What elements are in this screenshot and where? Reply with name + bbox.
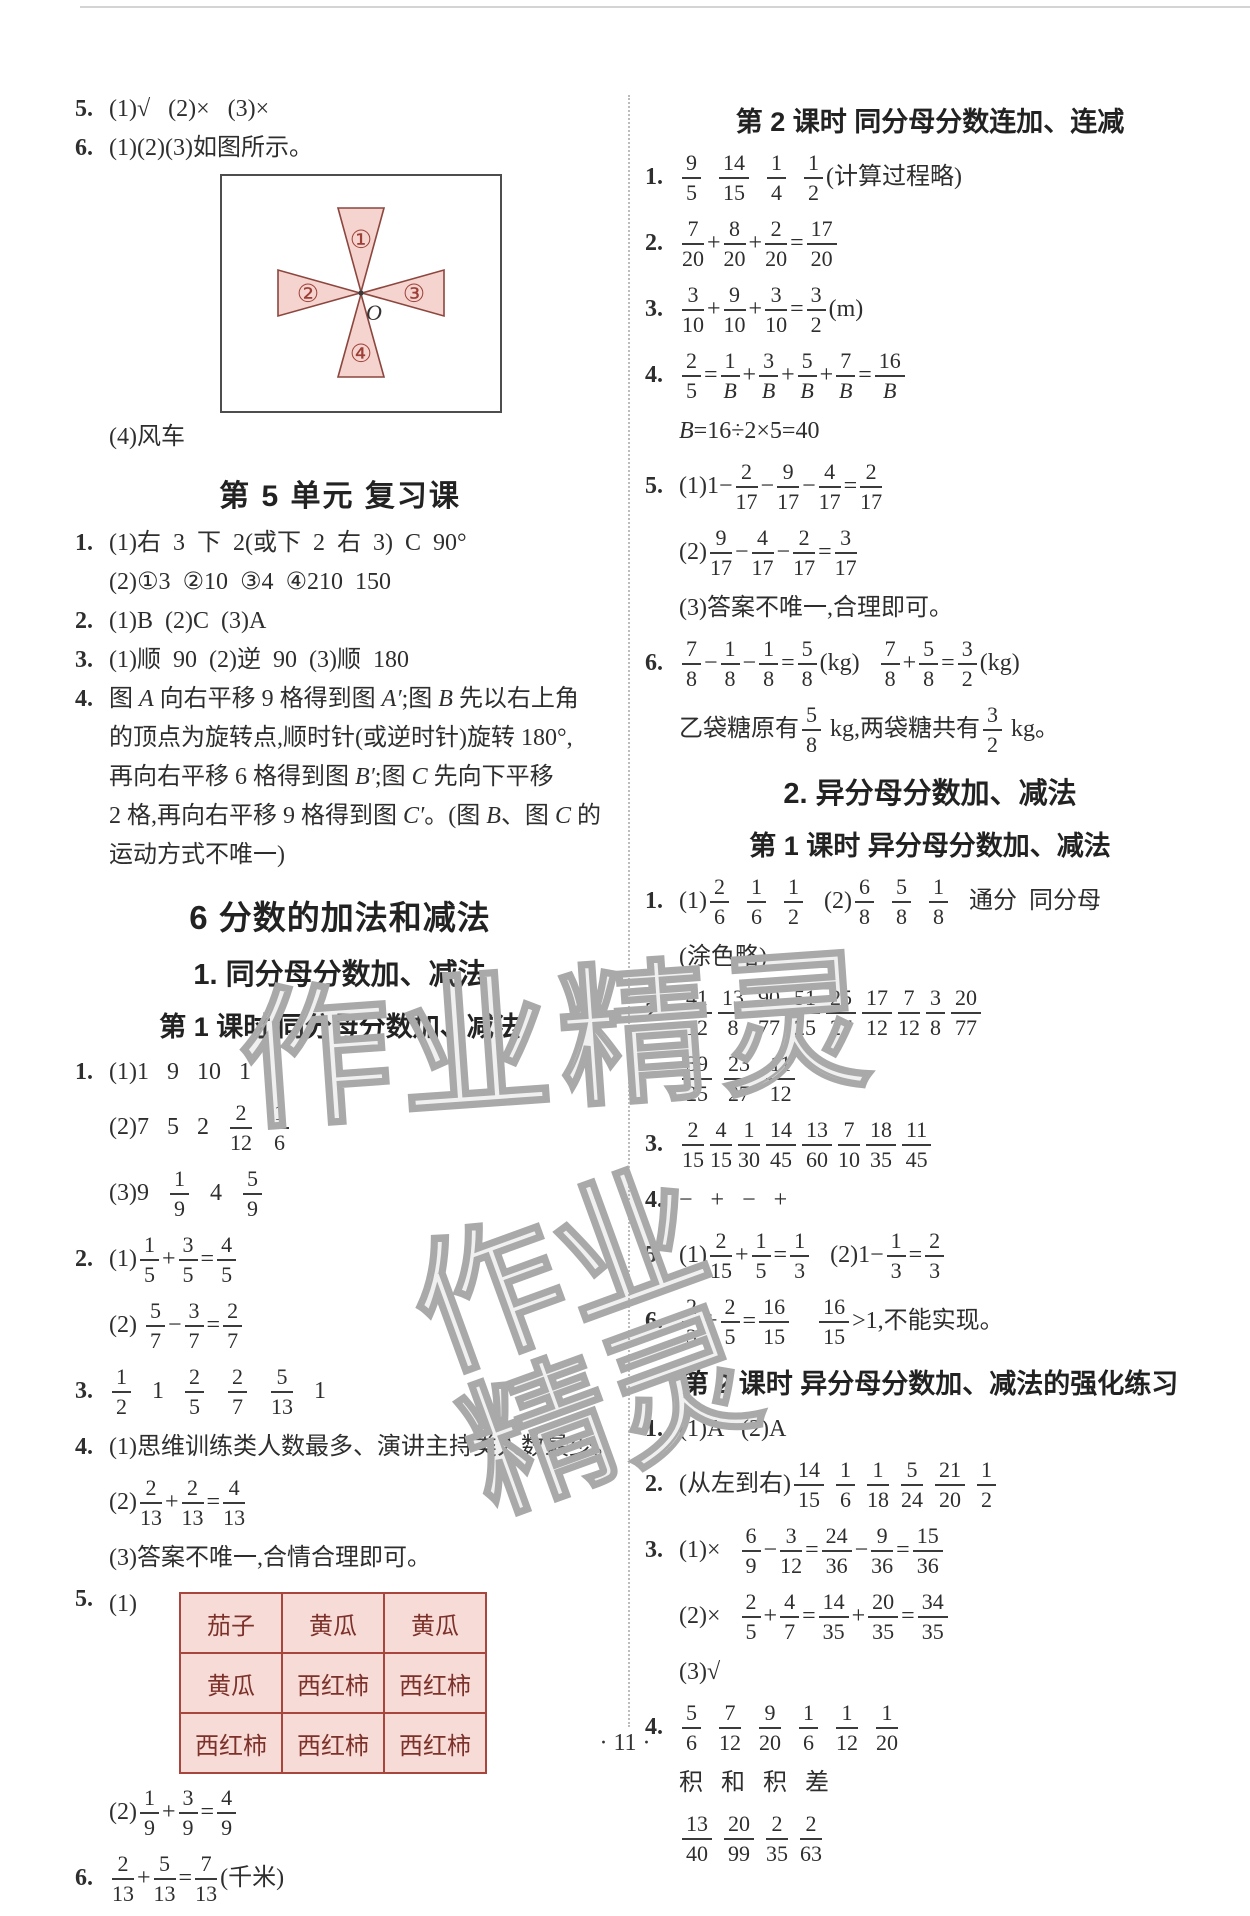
fraction-numerator: 7: [881, 637, 900, 665]
text-run: =: [781, 650, 795, 676]
fraction-denominator: 7: [223, 1327, 242, 1352]
fraction-denominator: 5: [682, 179, 701, 204]
fraction: 820: [724, 217, 746, 270]
answer-line: 5.(1)215+15=13 (2)1−13=23: [645, 1227, 1215, 1284]
answer-line: 再向右平移 6 格得到图 B′;图 C 先向下平移: [75, 759, 605, 795]
answer-line: 积 和 积 差: [645, 1765, 1215, 1801]
fraction-denominator: 36: [871, 1552, 893, 1577]
text-run: [877, 888, 889, 914]
fraction: 13: [887, 1229, 906, 1282]
fraction: 317: [835, 526, 857, 579]
veg-cell: 西红柿: [282, 1653, 384, 1713]
item-number: 5.: [645, 1242, 679, 1268]
fraction-denominator: 12: [766, 1080, 795, 1105]
text-run: 、图: [501, 803, 555, 829]
answer-line: 4.25=1B+3B+5B+7B=16B: [645, 347, 1215, 404]
fraction: 712: [898, 986, 920, 1039]
fraction-numerator: 23: [724, 1052, 754, 1080]
text-run: (1): [109, 1246, 137, 1272]
answer-line: (2)①3 ②10 ③4 ④210 150: [75, 564, 605, 600]
text-run: +: [137, 1865, 151, 1891]
text-run: +: [165, 1489, 179, 1515]
fraction-numerator: 1: [836, 1701, 858, 1729]
fraction-numerator: 5: [682, 1701, 701, 1729]
text-run: =: [790, 296, 804, 322]
fraction: 23: [682, 1295, 701, 1348]
fraction-numerator: 14: [819, 1590, 849, 1618]
text-run: =: [909, 1242, 923, 1268]
fraction-denominator: 9: [140, 1814, 159, 1839]
answer-line: 2.(从左到右)1415 16 118 524 2120 12: [645, 1456, 1215, 1513]
text-run: 向右平移 9 格得到图: [154, 686, 382, 712]
text-run: − + − +: [679, 1187, 787, 1213]
answer-line: (3)答案不唯一,合理即可。: [645, 590, 1215, 626]
fraction: 1712: [862, 986, 892, 1039]
veg-cell: 黄瓜: [180, 1653, 282, 1713]
item-number: 5.: [75, 91, 109, 127]
fraction: 1360: [802, 1118, 832, 1171]
fraction: 217: [736, 460, 758, 513]
fraction: 1615: [759, 1295, 789, 1348]
fraction-denominator: 13: [182, 1504, 204, 1529]
fraction-denominator: 13: [195, 1880, 217, 1905]
fraction: 16B: [875, 349, 905, 402]
fraction-denominator: 6: [270, 1129, 289, 1154]
answer-line: 2 格,再向右平移 9 格得到图 C′。(图 B、图 C 的: [75, 798, 605, 834]
fraction-numerator: 4: [223, 1476, 245, 1504]
veg-cell: 茄子: [180, 1593, 282, 1653]
fraction: 3B: [759, 349, 778, 402]
fraction: 27: [223, 1299, 242, 1352]
text-run: [757, 1065, 763, 1091]
fraction-denominator: B: [798, 377, 817, 402]
fraction-numerator: 13: [802, 1118, 832, 1146]
answer-line: (2)× 25+47=1435+2035=3435: [645, 1588, 1215, 1645]
fraction: 5125: [790, 986, 820, 1039]
fraction: 1615: [819, 1295, 849, 1348]
fraction-denominator: 15: [719, 179, 749, 204]
text-run: 通分 同分母: [951, 888, 1101, 914]
fraction: 19: [170, 1167, 189, 1220]
fraction-denominator: 15: [682, 1146, 704, 1171]
text-run: +: [743, 362, 757, 388]
fraction-denominator: 35: [868, 1618, 898, 1643]
text-run: [732, 888, 744, 914]
fraction-numerator: 11: [902, 1118, 931, 1146]
fraction-numerator: 9: [724, 283, 746, 311]
fraction: 12: [112, 1365, 131, 1418]
text-run: (4)风车: [109, 424, 185, 450]
fraction-numerator: 51: [790, 986, 820, 1014]
fraction-denominator: 12: [230, 1129, 252, 1154]
text-run: −: [764, 1537, 778, 1563]
text-run: =: [201, 1246, 215, 1272]
fraction-numerator: 1: [876, 1701, 898, 1729]
text-run: (涂色略): [679, 944, 767, 970]
fraction-denominator: 15: [759, 1323, 789, 1348]
section-heading: 1. 同分母分数加、减法: [75, 951, 605, 993]
item-number: 2.: [645, 230, 679, 256]
fraction-numerator: 1: [721, 637, 740, 665]
fraction-denominator: 6: [747, 903, 766, 928]
fraction-denominator: 20: [765, 245, 787, 270]
fraction-numerator: 1: [752, 1229, 771, 1257]
fraction-denominator: 5: [721, 1323, 740, 1348]
fraction: 18: [721, 637, 740, 690]
text-run: [715, 1065, 721, 1091]
fraction: 68: [855, 875, 874, 928]
fraction-denominator: 18: [867, 1486, 889, 1511]
fraction-denominator: 5: [217, 1261, 236, 1286]
fraction-numerator: 9: [759, 1701, 781, 1729]
text-run: 。(图: [424, 803, 486, 829]
text-run: +: [903, 650, 917, 676]
fraction-denominator: 4: [767, 179, 786, 204]
fraction-numerator: 41: [682, 986, 712, 1014]
answer-line: 1.(1)右 3 下 2(或下 2 右 3) C 90°: [75, 525, 605, 561]
fraction-numerator: 5: [243, 1167, 262, 1195]
text-run: [704, 164, 716, 190]
fraction: 936: [871, 1524, 893, 1577]
fraction-numerator: 3: [983, 703, 1002, 731]
fraction: 312: [780, 1524, 802, 1577]
fraction-numerator: 3: [682, 283, 704, 311]
fraction: 18: [759, 637, 778, 690]
fraction-denominator: 35: [819, 1618, 849, 1643]
section-heading: 第 5 单元 复习课: [75, 471, 605, 515]
fraction-denominator: 8: [929, 903, 948, 928]
fraction: 235: [766, 1812, 788, 1865]
fraction-denominator: 6: [710, 903, 729, 928]
text-run: [791, 1825, 797, 1851]
fraction: 25: [742, 1590, 761, 1643]
fraction-denominator: 36: [822, 1552, 852, 1577]
text-run: =: [896, 1537, 910, 1563]
text-run: (1): [679, 1242, 707, 1268]
text-run: (2): [806, 888, 852, 914]
fraction-numerator: 2: [736, 460, 758, 488]
fraction-numerator: 20: [868, 1590, 898, 1618]
fraction: 2099: [724, 1812, 754, 1865]
fraction-denominator: 12: [780, 1552, 802, 1577]
item-number: 6.: [645, 1308, 679, 1334]
answer-line: 6.23+25=1615 1615>1,不能实现。: [645, 1293, 1215, 1350]
fraction-denominator: B: [721, 377, 740, 402]
fraction: 7B: [836, 349, 855, 402]
fraction: 2436: [822, 1524, 852, 1577]
fraction: 130: [738, 1118, 760, 1171]
text-run: +: [781, 362, 795, 388]
text-run: +: [162, 1246, 176, 1272]
fraction-denominator: 20: [682, 245, 704, 270]
fraction: 710: [838, 1118, 860, 1171]
text-run: =: [941, 650, 955, 676]
fraction: 2120: [935, 1458, 965, 1511]
item-number: 2.: [645, 1471, 679, 1497]
fraction-numerator: 7: [195, 1852, 217, 1880]
answer-line: 3.12 1 25 27 513 1: [75, 1363, 605, 1420]
fraction-denominator: 8: [926, 1014, 945, 1039]
fraction-numerator: 1: [747, 875, 766, 903]
fraction-denominator: 7: [780, 1618, 799, 1643]
fraction-denominator: 35: [866, 1146, 896, 1171]
veg-cell: 黄瓜: [282, 1593, 384, 1653]
fraction-denominator: 5: [185, 1393, 204, 1418]
fraction-numerator: 18: [866, 1118, 896, 1146]
fraction-denominator: 77: [754, 1014, 784, 1039]
fraction: 16: [836, 1458, 855, 1511]
fraction-numerator: 5: [154, 1852, 176, 1880]
text-run: =: [704, 362, 718, 388]
text-run: (3)9: [109, 1180, 167, 1206]
blade-label-4: ④: [350, 339, 372, 368]
section-heading: 第 2 课时 异分母分数加、减法的强化练习: [645, 1362, 1215, 1401]
fraction: 16: [270, 1101, 289, 1154]
fraction: 78: [881, 637, 900, 690]
fraction-denominator: 5: [752, 1257, 771, 1282]
fraction-numerator: 2: [710, 1229, 732, 1257]
text-run: (2): [679, 539, 707, 565]
item-number: 1.: [75, 525, 109, 561]
text-run: =: [844, 473, 858, 499]
fraction-denominator: 8: [798, 665, 817, 690]
answer-line: 1340 2099 235 263: [645, 1810, 1215, 1867]
fraction-numerator: 7: [898, 986, 920, 1014]
fraction-numerator: 5: [798, 349, 817, 377]
fraction-denominator: 27: [724, 1080, 754, 1105]
text-run: (1)A (2)A: [679, 1416, 786, 1442]
fraction: 1415: [794, 1458, 824, 1511]
fraction-denominator: 25: [790, 1014, 820, 1039]
fraction-numerator: 1: [799, 1701, 818, 1729]
section-heading: 第 2 课时 同分母分数连加、连减: [645, 100, 1215, 139]
fraction-denominator: 10: [724, 311, 746, 336]
fraction: 213: [182, 1476, 204, 1529]
text-run: kg。: [1005, 716, 1059, 742]
text-run: =: [901, 1603, 915, 1629]
text-run: 2 格,再向右平移 9 格得到图: [109, 803, 403, 829]
answer-line: 的顶点为旋转点,顺时针(或逆时针)旋转 180°,: [75, 720, 605, 756]
fraction-numerator: 1: [836, 1458, 855, 1486]
fraction-denominator: 8: [919, 665, 938, 690]
fraction: 1112: [766, 1052, 795, 1105]
fraction-denominator: 30: [738, 1146, 760, 1171]
center-point-label: O: [366, 300, 382, 325]
math-variable: C: [555, 803, 571, 829]
item-number: 5.: [75, 1586, 109, 1613]
text-run: =: [207, 1489, 221, 1515]
fraction-denominator: 17: [736, 488, 758, 513]
text-run: +: [707, 230, 721, 256]
answer-line: (涂色略): [645, 939, 1215, 975]
text-run: −: [735, 539, 749, 565]
fraction-numerator: 17: [807, 217, 837, 245]
text-run: =: [818, 539, 832, 565]
fraction-numerator: 2: [793, 526, 815, 554]
text-run: +: [764, 1603, 778, 1629]
fraction-denominator: 10: [682, 311, 704, 336]
item-number: 4.: [75, 1429, 109, 1465]
text-run: =: [802, 1603, 816, 1629]
fraction-denominator: 15: [794, 1486, 824, 1511]
fraction: 47: [780, 1590, 799, 1643]
text-run: [715, 1825, 721, 1851]
item-number: 2.: [645, 999, 679, 1025]
fraction: 2327: [724, 1052, 754, 1105]
fraction: 45: [217, 1233, 236, 1286]
fraction-numerator: 5: [901, 1458, 923, 1486]
fraction: 217: [793, 526, 815, 579]
fraction-denominator: 10: [765, 311, 787, 336]
text-run: (1)右 3 下 2(或下 2 右 3) C 90°: [109, 530, 467, 556]
fraction-denominator: 9: [179, 1814, 198, 1839]
fraction-denominator: 20: [724, 245, 746, 270]
fraction-numerator: 3: [759, 349, 778, 377]
fraction-denominator: 2: [804, 179, 823, 204]
text-run: 图: [109, 686, 139, 712]
text-run: =: [858, 362, 872, 388]
fraction-numerator: 9: [871, 1524, 893, 1552]
text-run: (1)(2)(3)如图所示。: [109, 135, 313, 161]
fraction-denominator: 7: [185, 1327, 204, 1352]
fraction-numerator: 16: [875, 349, 905, 377]
fraction-numerator: 4: [710, 1118, 732, 1146]
fraction: 35: [179, 1233, 198, 1286]
fraction: 25: [185, 1365, 204, 1418]
fraction-denominator: 24: [901, 1486, 923, 1511]
answer-line: 6.213+513=713(千米): [75, 1850, 605, 1907]
text-run: (kg): [980, 650, 1020, 676]
fraction-denominator: 3: [925, 1257, 944, 1282]
fraction: 217: [860, 460, 882, 513]
fraction-denominator: 8: [682, 665, 701, 690]
fraction-denominator: 15: [710, 1257, 732, 1282]
item-number: 4.: [75, 681, 109, 717]
text-run: −: [743, 650, 757, 676]
fraction: 58: [919, 637, 938, 690]
answer-line: 1.(1)26 16 12 (2)68 58 18 通分 同分母: [645, 873, 1215, 930]
text-run: (3)答案不唯一,合理即可。: [679, 595, 953, 621]
fraction-numerator: 5: [798, 637, 817, 665]
fraction: 12: [977, 1458, 996, 1511]
fraction-denominator: 7: [228, 1393, 247, 1418]
fraction-denominator: 3: [790, 1257, 809, 1282]
fraction-numerator: 25: [826, 986, 856, 1014]
text-run: [769, 888, 781, 914]
fraction-denominator: 8: [855, 903, 874, 928]
fraction: 37: [185, 1299, 204, 1352]
fraction-numerator: 2: [140, 1476, 162, 1504]
fraction-denominator: 17: [793, 554, 815, 579]
fraction-numerator: 6: [742, 1524, 761, 1552]
fraction-numerator: 2: [925, 1229, 944, 1257]
fraction-numerator: 7: [682, 217, 704, 245]
fraction: 213: [112, 1852, 134, 1905]
fraction-denominator: 8: [802, 731, 821, 756]
text-run: (3)答案不唯一,合情合理即可。: [109, 1545, 431, 1571]
item-number: 3.: [645, 296, 679, 322]
fraction-numerator: 3: [179, 1233, 198, 1261]
answer-line: 4.(1)思维训练类人数最多、演讲主持类人数最少。: [75, 1429, 605, 1465]
text-run: =: [790, 230, 804, 256]
fraction: 263: [800, 1812, 822, 1865]
fraction: 513: [154, 1852, 176, 1905]
fraction-denominator: 10: [838, 1146, 860, 1171]
fraction-denominator: 6: [836, 1486, 855, 1511]
text-run: 1: [134, 1378, 182, 1404]
section-heading: 第 1 课时 同分母分数加、减法: [75, 1005, 605, 1044]
fraction: 25: [721, 1295, 740, 1348]
fraction-numerator: 1: [784, 875, 803, 903]
fraction: 1720: [807, 217, 837, 270]
fraction-numerator: 1: [887, 1229, 906, 1257]
text-run: −: [855, 1537, 869, 1563]
fraction-denominator: 5: [682, 377, 701, 402]
fraction: 118: [867, 1458, 889, 1511]
fraction-numerator: 7: [719, 1701, 741, 1729]
fraction-numerator: 2: [742, 1590, 761, 1618]
fraction: 49: [217, 1786, 236, 1839]
fraction-numerator: 16: [759, 1295, 789, 1323]
fraction: 1B: [721, 349, 740, 402]
fraction: 58: [798, 637, 817, 690]
fraction-numerator: 1: [767, 151, 786, 179]
item-number: 3.: [645, 1131, 679, 1157]
item-number: 1.: [645, 1411, 679, 1447]
fraction-numerator: 2: [765, 217, 787, 245]
fraction-denominator: 17: [752, 554, 774, 579]
text-run: [757, 1825, 763, 1851]
text-run: +: [820, 362, 834, 388]
text-run: −: [168, 1312, 182, 1338]
fraction-denominator: 8: [759, 665, 778, 690]
veg-cell: 黄瓜: [384, 1593, 486, 1653]
text-run: (计算过程略): [826, 164, 962, 190]
fraction-denominator: 20: [807, 245, 837, 270]
fraction: 12: [784, 875, 803, 928]
fraction-denominator: 2: [958, 665, 977, 690]
fraction: 15: [140, 1233, 159, 1286]
fraction-denominator: 7: [146, 1327, 165, 1352]
item-number: 5.: [645, 473, 679, 499]
fraction: 917: [777, 460, 799, 513]
fraction-denominator: 45: [902, 1146, 931, 1171]
fraction-numerator: 3: [835, 526, 857, 554]
fraction-numerator: 3: [179, 1786, 198, 1814]
fraction-numerator: 39: [682, 1052, 712, 1080]
fraction: 59: [243, 1167, 262, 1220]
fraction-numerator: 5: [892, 875, 911, 903]
answer-line: 6.(1)(2)(3)如图所示。: [75, 130, 605, 166]
text-run: 乙袋糖原有: [679, 716, 799, 742]
fraction-numerator: 5: [271, 1365, 293, 1393]
fraction-denominator: 36: [913, 1552, 943, 1577]
fraction-denominator: B: [836, 377, 855, 402]
fraction-denominator: 27: [826, 1014, 856, 1039]
fraction-numerator: 24: [822, 1524, 852, 1552]
fraction-denominator: 5: [140, 1261, 159, 1286]
fraction: 12: [804, 151, 823, 204]
fraction: 417: [752, 526, 774, 579]
math-variable: C′: [403, 803, 424, 829]
fraction-denominator: 9: [217, 1814, 236, 1839]
fraction: 524: [901, 1458, 923, 1511]
fraction: 19: [140, 1786, 159, 1839]
text-run: =: [743, 1308, 757, 1334]
text-run: (1)1 9 10 1: [109, 1059, 251, 1085]
fraction: 415: [710, 1118, 732, 1171]
fraction-numerator: 1: [929, 875, 948, 903]
